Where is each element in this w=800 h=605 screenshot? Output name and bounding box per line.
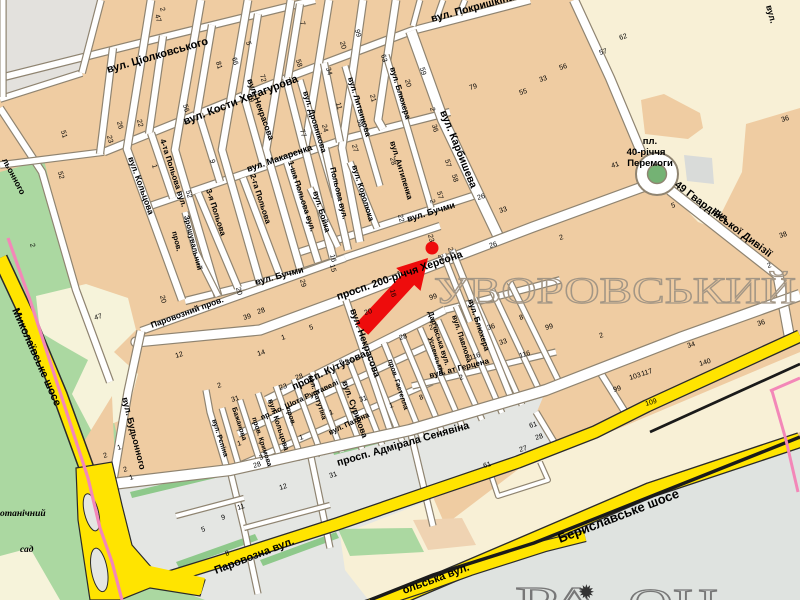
svg-text:ОН: ОН	[628, 582, 718, 600]
svg-text:Перемоги: Перемоги	[627, 158, 673, 169]
svg-text:отанічний: отанічний	[0, 508, 46, 519]
svg-text:пл.: пл.	[643, 136, 657, 147]
svg-text:сад: сад	[20, 544, 34, 555]
svg-text:✹: ✹	[578, 582, 595, 600]
svg-text:УВОРОВСЬКИЙ: УВОРОВСЬКИЙ	[434, 270, 796, 312]
svg-text:40-річчя: 40-річчя	[627, 147, 666, 158]
